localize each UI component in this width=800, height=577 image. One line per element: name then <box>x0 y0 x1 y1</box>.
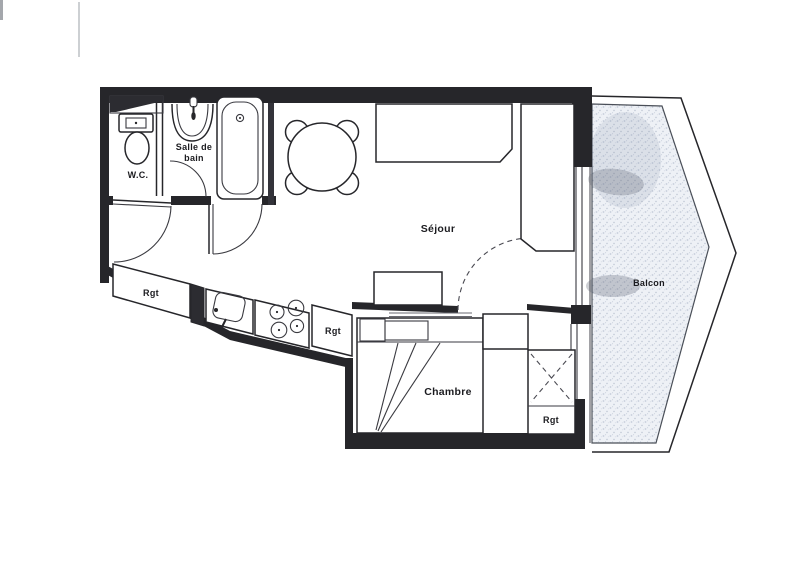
kitchen-divider <box>191 284 204 326</box>
stove-burner-dot-2 <box>295 307 297 309</box>
toilet-button <box>135 122 137 124</box>
tv-stand <box>374 272 442 305</box>
wall-right-upper <box>572 87 592 167</box>
sideboard <box>376 104 512 162</box>
toilet-icon <box>125 132 149 164</box>
washbasin-faucet <box>190 97 197 107</box>
bed-icon <box>357 318 483 433</box>
storage-kitchen-left-label: Rgt <box>143 288 159 298</box>
hall-wall-segment-1 <box>100 196 113 205</box>
storage-kitchen-right-label: Rgt <box>325 326 341 336</box>
floor-plan: Balcon <box>0 0 800 577</box>
wc-label: W.C. <box>128 170 149 180</box>
living-label: Séjour <box>421 223 455 235</box>
washbasin-drain <box>191 112 195 120</box>
stove-burner-dot-1 <box>276 311 278 313</box>
bathtub-icon <box>217 97 263 199</box>
wall-bottom <box>345 433 585 449</box>
bathroom-label-line1: Salle de <box>176 142 212 152</box>
wall-left <box>100 87 109 283</box>
bedroom-label: Chambre <box>424 386 472 398</box>
stove-burner-dot-4 <box>296 325 298 327</box>
wall-unit <box>521 104 574 251</box>
wall-top <box>100 87 592 103</box>
kitchen-sink-faucet-knob <box>219 328 222 331</box>
balcony-label: Balcon <box>633 278 665 288</box>
bedroom-desk <box>483 314 528 349</box>
bathroom-label-line2: bain <box>184 153 204 163</box>
hall-wall-segment-2 <box>171 196 211 205</box>
wall-right-pillar <box>571 305 591 324</box>
bathtub-drain-dot <box>239 117 241 119</box>
kitchen-sink-tap-dot <box>214 308 218 312</box>
stove-burner-dot-3 <box>278 329 280 331</box>
balcony-smudge-2 <box>586 275 640 297</box>
bathroom-east-wall <box>268 103 274 205</box>
dining-table-icon <box>288 123 356 191</box>
wall-bedroom-west <box>345 358 353 442</box>
storage-bedroom-label: Rgt <box>543 415 559 425</box>
